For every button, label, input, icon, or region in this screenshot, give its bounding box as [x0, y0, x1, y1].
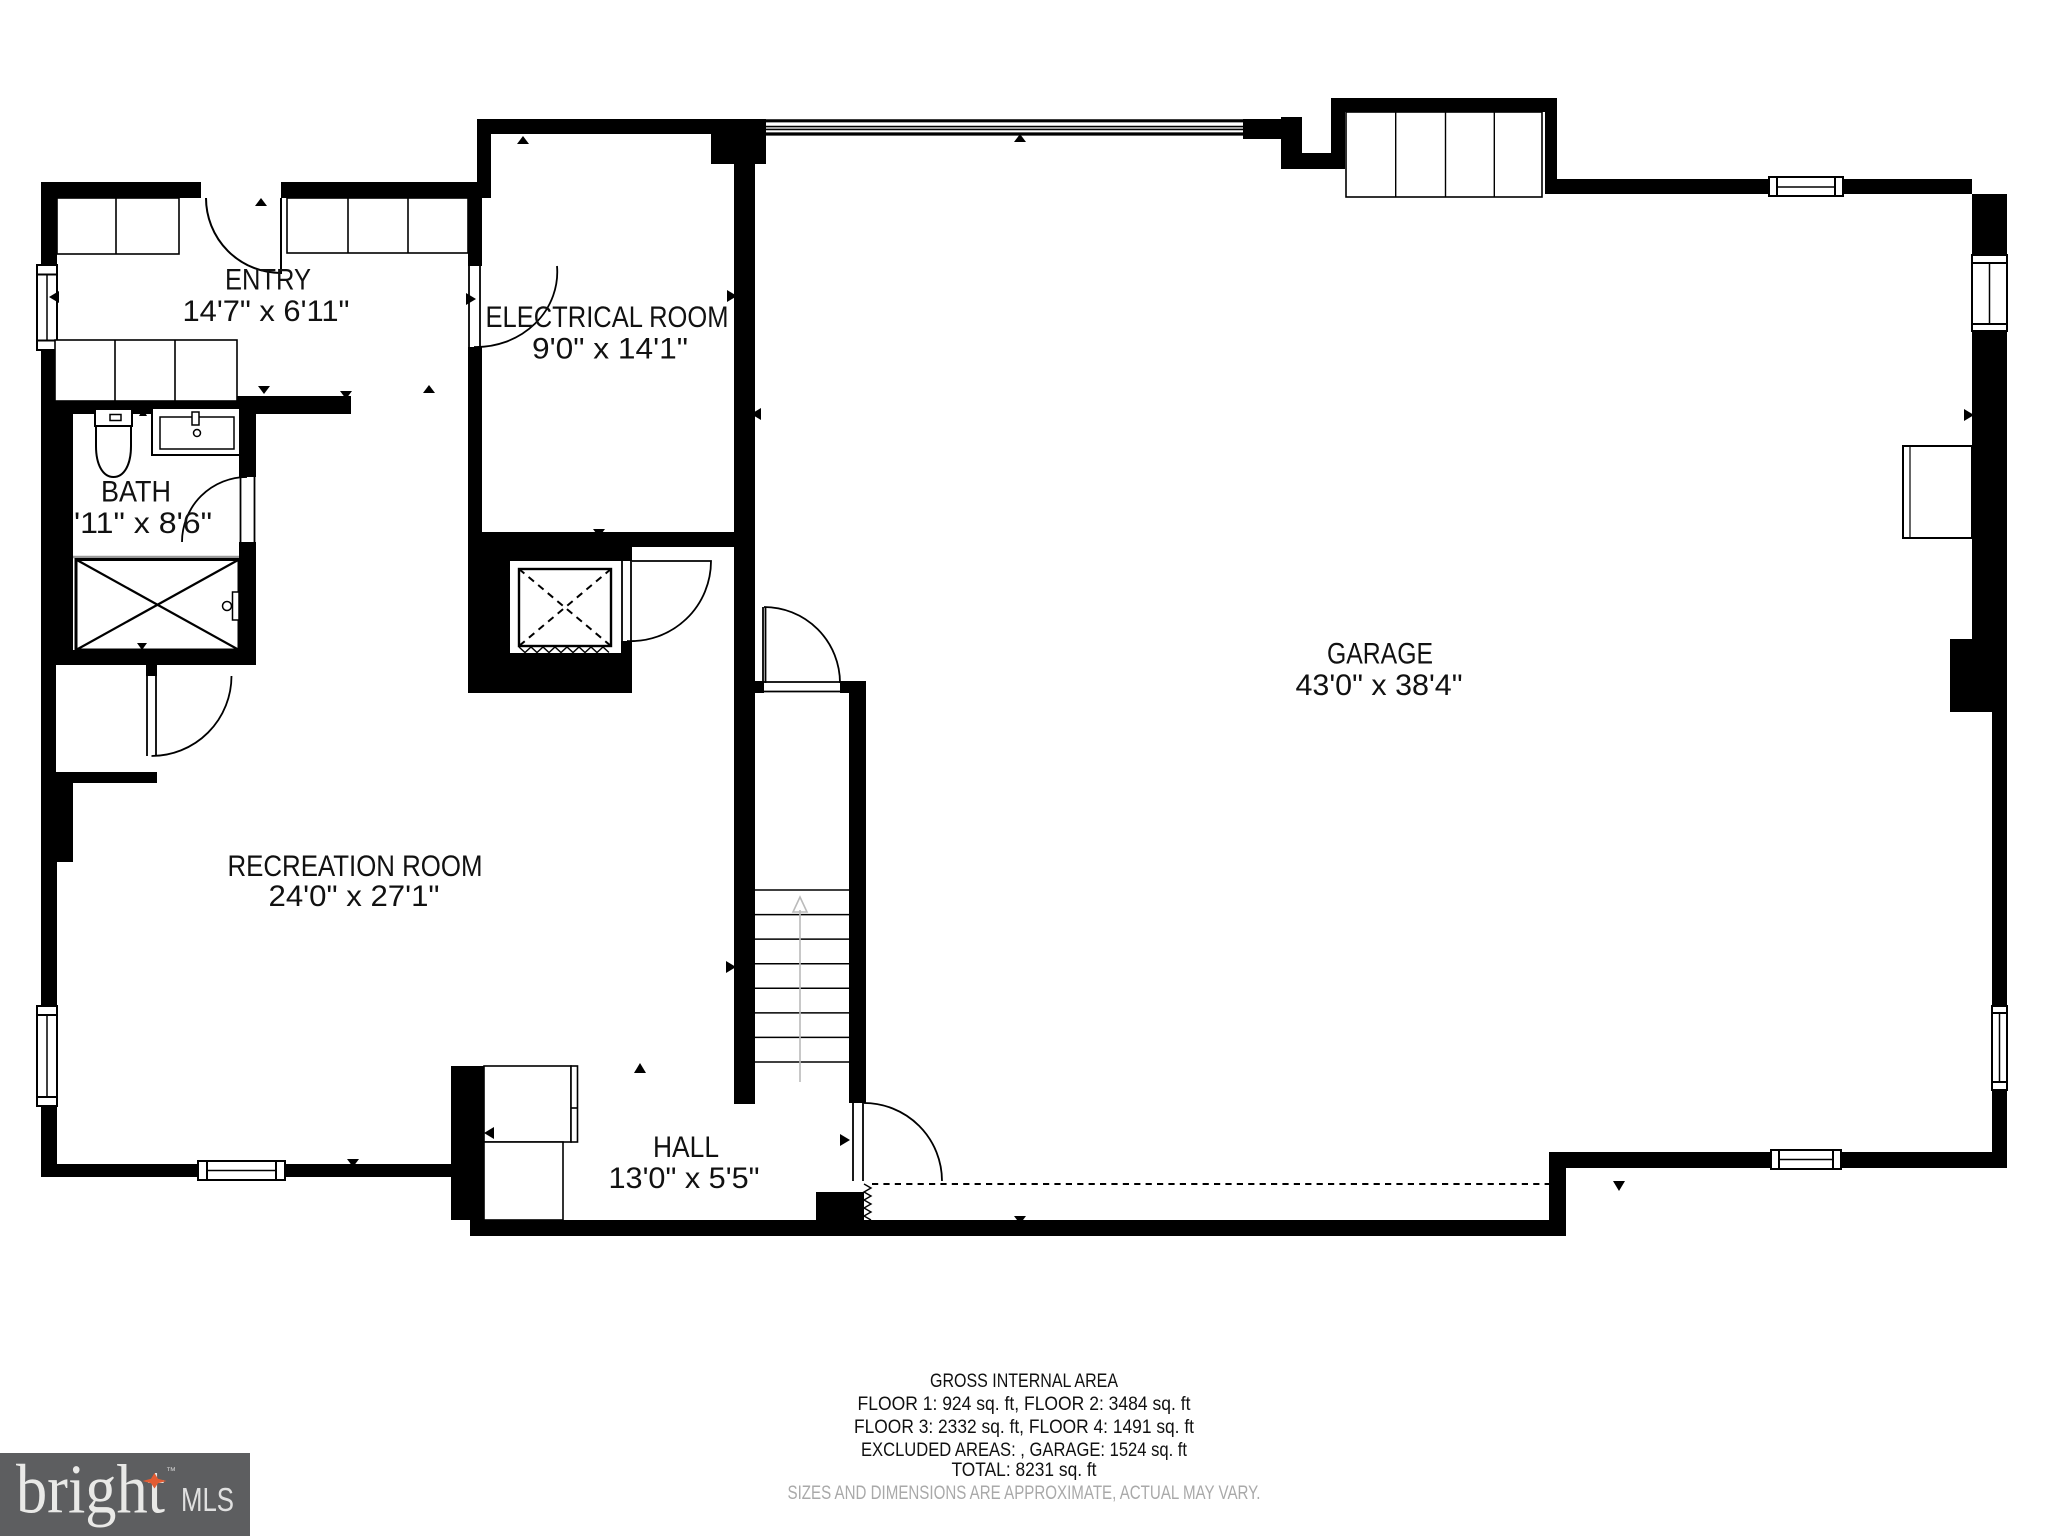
svg-text:43'0" x 38'4": 43'0" x 38'4" — [1296, 669, 1463, 702]
svg-text:ENTRY: ENTRY — [225, 264, 311, 297]
svg-text:MLS: MLS — [181, 1481, 234, 1518]
svg-text:'11" x 8'6": '11" x 8'6" — [74, 507, 212, 540]
svg-text:HALL: HALL — [653, 1131, 719, 1164]
svg-text:GROSS INTERNAL AREA: GROSS INTERNAL AREA — [930, 1371, 1118, 1392]
svg-text:FLOOR 3: 2332 sq. ft, FLOOR 4:: FLOOR 3: 2332 sq. ft, FLOOR 4: 1491 sq. … — [854, 1417, 1195, 1438]
svg-text:9'0" x 14'1": 9'0" x 14'1" — [532, 333, 688, 366]
svg-text:SIZES AND DIMENSIONS ARE APPRO: SIZES AND DIMENSIONS ARE APPROXIMATE, AC… — [788, 1483, 1261, 1504]
svg-text:bright: bright — [16, 1452, 165, 1529]
svg-text:™: ™ — [166, 1466, 176, 1477]
svg-text:RECREATION ROOM: RECREATION ROOM — [228, 850, 483, 883]
svg-text:FLOOR 1: 924 sq. ft, FLOOR 2:: FLOOR 1: 924 sq. ft, FLOOR 2: 3484 sq. f… — [858, 1394, 1192, 1415]
svg-text:BATH: BATH — [101, 476, 171, 509]
svg-text:14'7" x 6'11": 14'7" x 6'11" — [183, 295, 350, 328]
svg-text:13'0" x 5'5": 13'0" x 5'5" — [609, 1162, 760, 1195]
svg-text:24'0" x 27'1": 24'0" x 27'1" — [269, 880, 440, 913]
svg-text:GARAGE: GARAGE — [1327, 638, 1433, 671]
svg-text:EXCLUDED AREAS: , GARAGE: 1524: EXCLUDED AREAS: , GARAGE: 1524 sq. ft — [861, 1440, 1188, 1461]
svg-text:TOTAL: 8231 sq. ft: TOTAL: 8231 sq. ft — [952, 1460, 1098, 1481]
svg-text:ELECTRICAL ROOM: ELECTRICAL ROOM — [486, 301, 729, 334]
